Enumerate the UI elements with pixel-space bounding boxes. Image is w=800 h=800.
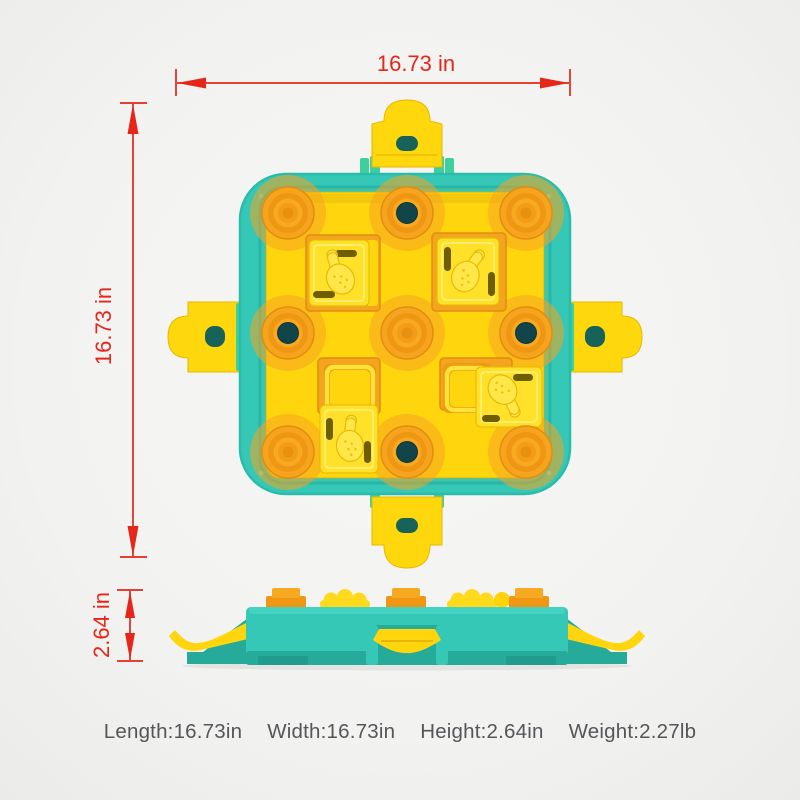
- tab-slot: [205, 326, 225, 347]
- clip-tab-right: [564, 302, 642, 372]
- specs-row: Length:16.73in Width:16.73in Height:2.64…: [0, 720, 800, 744]
- dimension-arrow-icon: [125, 591, 135, 618]
- slider-track-bottom-left: [318, 358, 380, 473]
- slider-block: [437, 238, 499, 305]
- feeding-knob: [381, 187, 433, 239]
- treat-hole: [278, 323, 299, 344]
- width-dimension-label: 16.73 in: [377, 51, 455, 76]
- depth-dimension-label: 2.64 in: [89, 592, 114, 658]
- feeding-knob: [262, 426, 314, 478]
- product-dimension-image: 16.73 in 16.73 in 2.64 in Length:16.73in…: [0, 0, 800, 800]
- dimension-arrow-icon: [128, 104, 139, 134]
- feeding-knob: [262, 187, 314, 239]
- feeding-knob: [381, 426, 433, 478]
- side-foot-right: [566, 618, 645, 664]
- spec-height: Height:2.64in: [420, 720, 543, 744]
- feeding-knob: [500, 426, 552, 478]
- feeding-knob: [500, 307, 552, 359]
- depth-dimension: 2.64 in: [89, 590, 143, 661]
- spec-length: Length:16.73in: [104, 720, 242, 744]
- slider-track-top-left: [306, 235, 380, 311]
- side-bump: [320, 589, 370, 609]
- product-side-view: [169, 588, 645, 671]
- height-dimension: 16.73 in: [91, 103, 147, 557]
- clip-tab-left: [168, 302, 246, 372]
- slider-block: [476, 367, 542, 427]
- feeding-knob: [381, 307, 433, 359]
- treat-hole: [397, 442, 418, 463]
- side-knob: [386, 588, 426, 609]
- dimension-arrow-icon: [540, 78, 569, 89]
- product-top-view: [168, 100, 642, 568]
- side-knob: [509, 588, 549, 609]
- dimension-arrow-icon: [177, 78, 206, 89]
- tab-slot: [585, 326, 605, 347]
- feeding-knob: [500, 187, 552, 239]
- clip-tab-top: [360, 100, 454, 177]
- slider-track-top-right: [432, 233, 506, 311]
- spec-width: Width:16.73in: [267, 720, 395, 744]
- treat-hole: [397, 203, 418, 224]
- dimension-arrow-icon: [128, 526, 139, 556]
- side-foot-left: [169, 618, 248, 664]
- tab-slot: [396, 518, 418, 533]
- width-dimension: 16.73 in: [176, 51, 570, 96]
- feeding-knob: [262, 307, 314, 359]
- spec-weight: Weight:2.27lb: [569, 720, 697, 744]
- slider-block: [320, 405, 378, 473]
- clip-tab-bottom: [370, 490, 444, 568]
- side-center-tab: [366, 625, 448, 665]
- tab-slot: [396, 136, 418, 151]
- figure-canvas: 16.73 in 16.73 in 2.64 in: [0, 0, 800, 800]
- height-dimension-label: 16.73 in: [91, 287, 116, 365]
- slider-block: [309, 240, 369, 306]
- side-bump: [447, 589, 510, 609]
- side-knob: [266, 588, 306, 609]
- dimension-arrow-icon: [125, 633, 135, 660]
- treat-hole: [516, 323, 537, 344]
